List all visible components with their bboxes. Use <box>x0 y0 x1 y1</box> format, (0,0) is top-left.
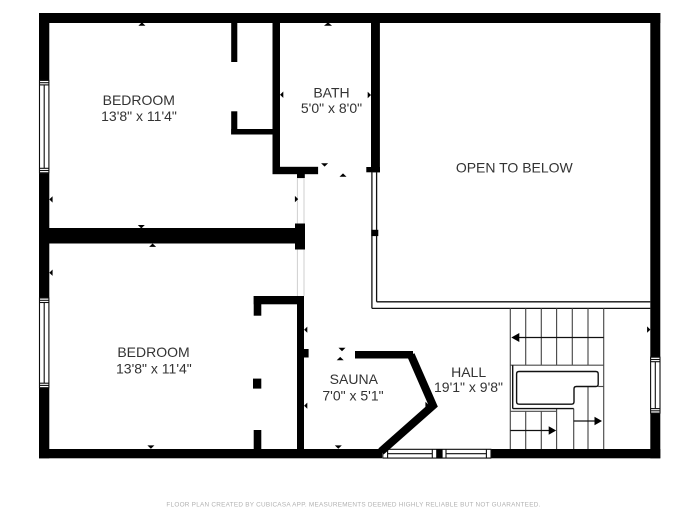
svg-text:SAUNA: SAUNA <box>330 371 379 387</box>
svg-text:BATH: BATH <box>313 85 349 101</box>
svg-text:13'8" x 11'4": 13'8" x 11'4" <box>116 361 192 377</box>
svg-text:19'1" x 9'8": 19'1" x 9'8" <box>434 379 503 395</box>
svg-text:7'0" x 5'1": 7'0" x 5'1" <box>322 388 383 404</box>
svg-text:5'0" x 8'0": 5'0" x 8'0" <box>301 100 362 116</box>
svg-text:FLOOR PLAN CREATED BY CUBICASA: FLOOR PLAN CREATED BY CUBICASA APP. MEAS… <box>166 502 540 509</box>
svg-text:HALL: HALL <box>451 364 486 380</box>
svg-text:OPEN TO BELOW: OPEN TO BELOW <box>456 160 574 176</box>
svg-text:13'8" x 11'4": 13'8" x 11'4" <box>101 108 177 124</box>
svg-text:BEDROOM: BEDROOM <box>103 92 175 108</box>
svg-text:BEDROOM: BEDROOM <box>117 344 189 360</box>
